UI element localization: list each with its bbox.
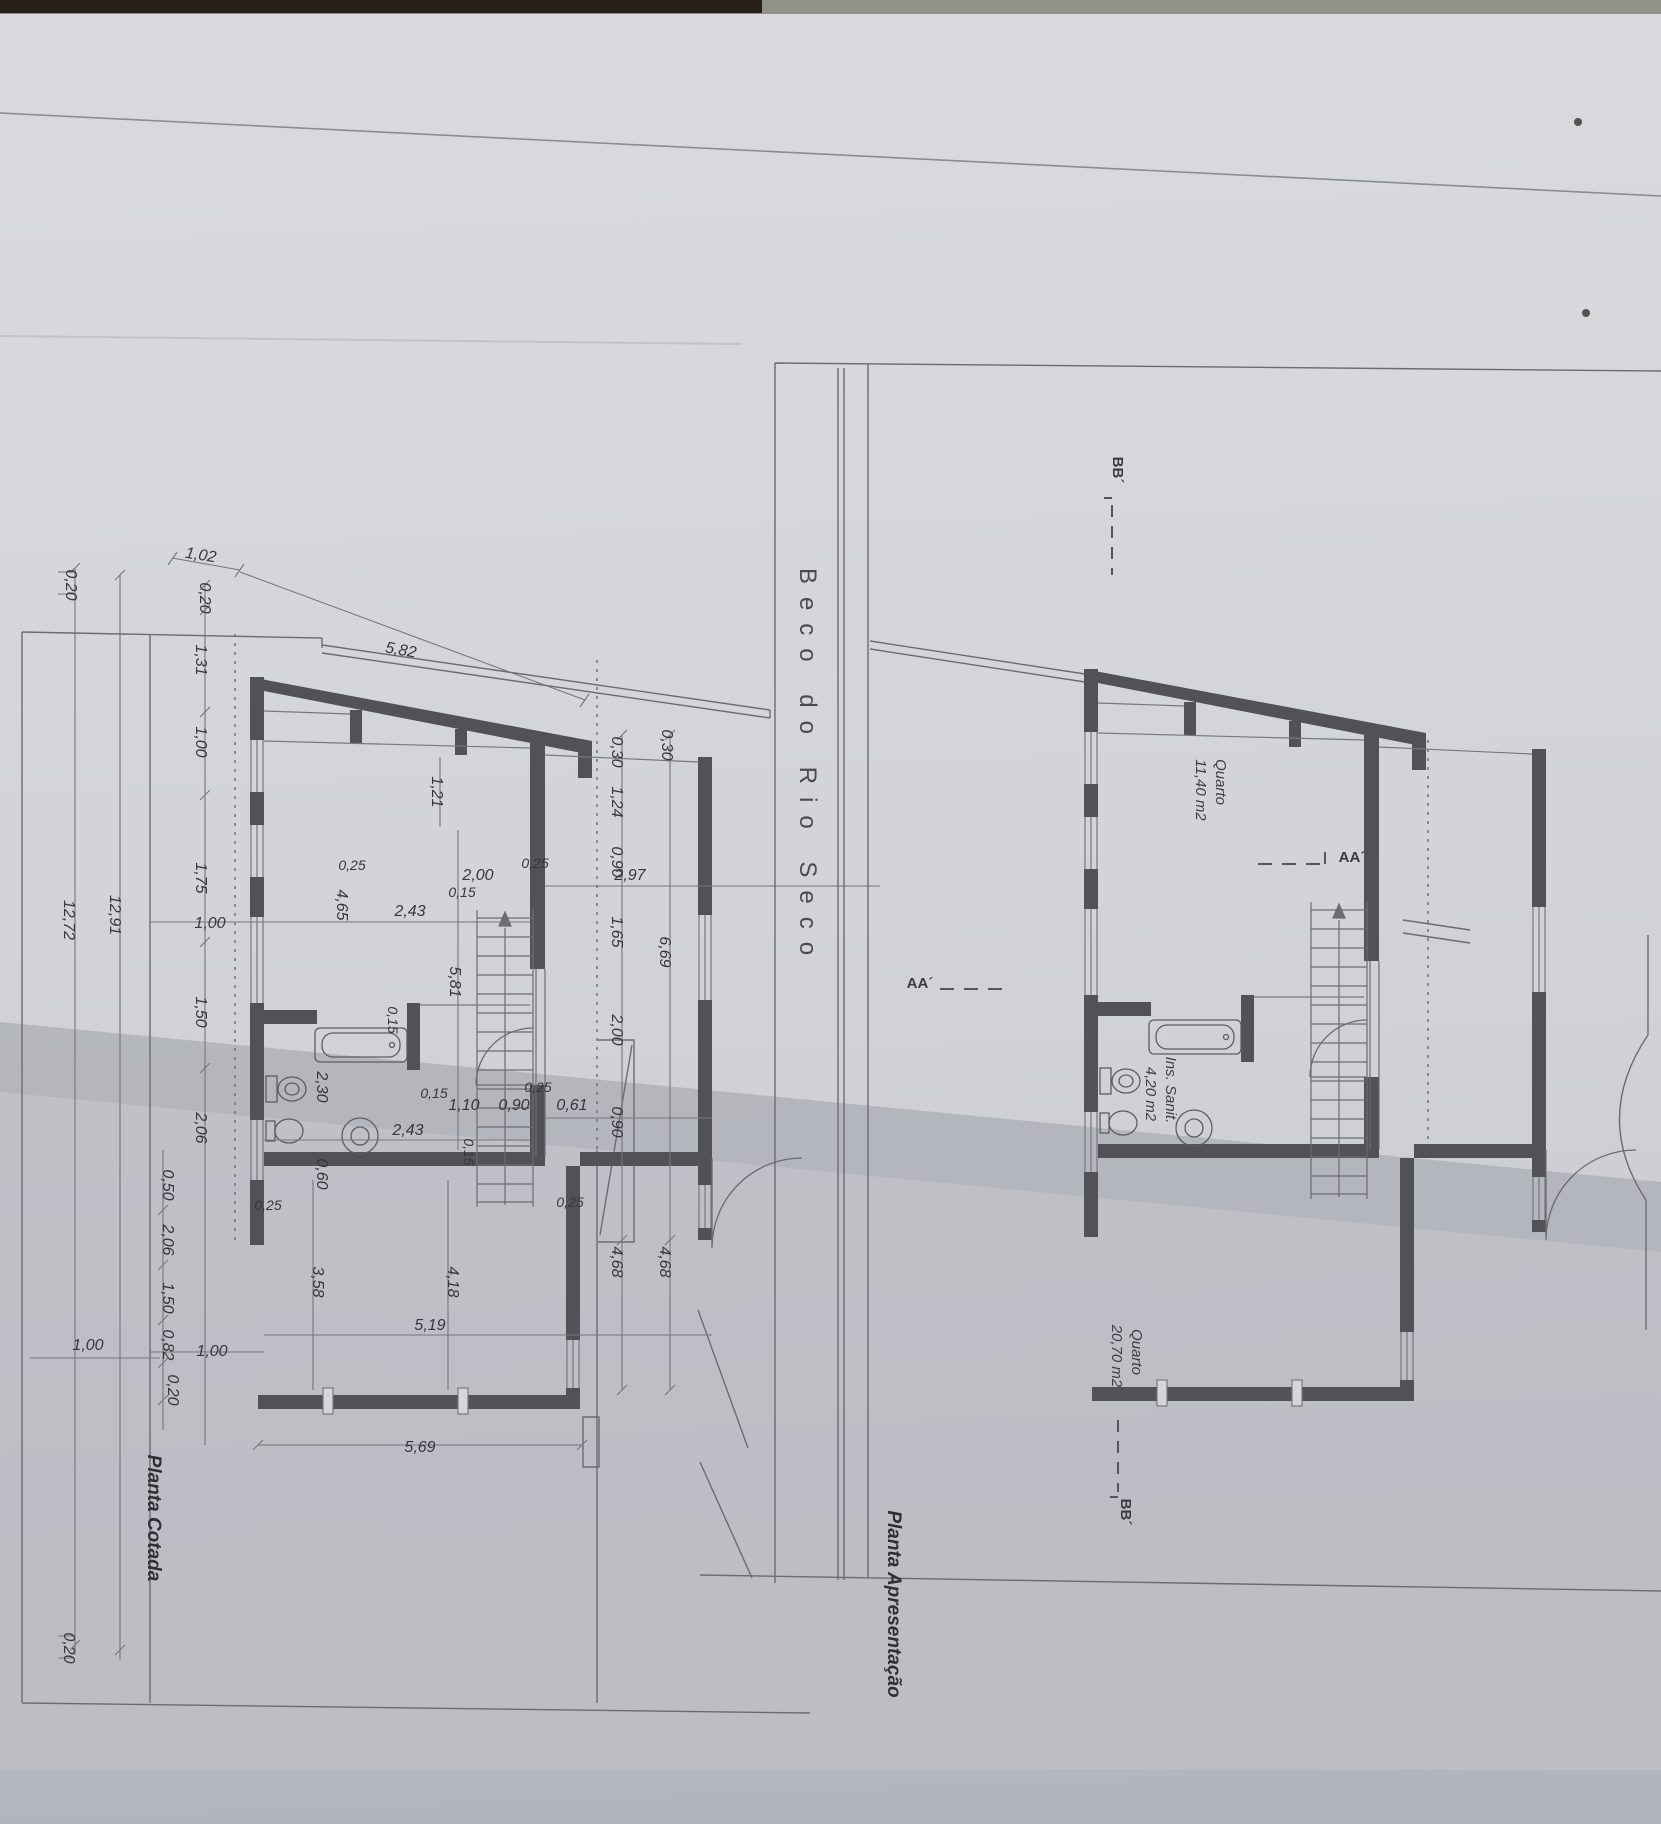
dimension-label: 1,65 (608, 916, 625, 947)
bathtub-drain (1224, 1035, 1229, 1040)
wall-stairwell (1364, 735, 1379, 961)
bottom-edge-shade (0, 1770, 1661, 1824)
wall-left-pier (250, 792, 264, 825)
room-name: Quarto (1212, 759, 1229, 805)
wall-stub (1184, 702, 1196, 735)
section-label-bb-bottom: BB´ (1117, 1499, 1134, 1526)
dimension-label: 2,43 (391, 1122, 423, 1139)
dimension-label: 0,30 (658, 729, 675, 760)
dimension-label: 0,90 (608, 1106, 625, 1137)
room-area: 4,20 m2 (1142, 1067, 1159, 1122)
dimension-label: 0,15 (420, 1085, 447, 1101)
dark-table-strip (0, 0, 762, 13)
dimension-label: 3,58 (309, 1266, 326, 1297)
dimension-label: 0,15 (448, 884, 475, 900)
dimension-label: 0,25 (521, 855, 548, 871)
dimension-label: 1,50 (192, 996, 209, 1027)
window-hardware (323, 1388, 333, 1414)
dimension-label: 2,00 (461, 867, 493, 884)
dimension-label: 0,20 (164, 1374, 181, 1405)
toilet-tank (1100, 1068, 1111, 1094)
wall-right-pier (698, 1228, 712, 1240)
dimension-label: 5,82 (384, 639, 418, 661)
dimension-label: 1,00 (196, 1343, 227, 1360)
wall-right-pier (1532, 749, 1546, 907)
dimension-label: 0,90 (498, 1097, 529, 1114)
wall-corner-l (1414, 1144, 1546, 1158)
wall-bottomroom-right (1400, 1158, 1414, 1332)
bathtub-drain (390, 1043, 395, 1048)
wall-stub (1412, 733, 1426, 770)
paper-crease-line (0, 336, 742, 344)
dimension-label: 0,50 (159, 1169, 176, 1200)
wall-bath-divider (1241, 995, 1254, 1062)
dimension-label: 4,18 (444, 1266, 461, 1297)
plan-title-left: Planta Cotada (143, 1455, 164, 1582)
floor-plan-photo: 1,02 5,82 0,20 1,31 1,00 1,75 1,50 2,06 … (0, 0, 1661, 1824)
wall-right-pier (1532, 1220, 1546, 1232)
interior-thin-walls (1098, 703, 1532, 997)
dimension-label: 0,60 (313, 1158, 330, 1189)
total-dimension-label: 12,91 (106, 895, 123, 935)
window-hardware (1292, 1380, 1302, 1406)
section-label-aa-right: AA´ (1339, 849, 1366, 866)
room-name: Ins. Sanit. (1162, 1057, 1179, 1124)
wall-stub (455, 729, 467, 755)
dimension-label: 1,10 (448, 1097, 479, 1114)
dimension-label: 5,19 (414, 1317, 445, 1334)
dimension-label: 2,30 (313, 1070, 330, 1102)
wall-bottomroom-bottom (258, 1395, 580, 1409)
dimension-label: 0,15 (385, 1006, 401, 1033)
wall-left-pier (1084, 669, 1098, 732)
wall-stub (578, 741, 592, 778)
wall-left-pier (250, 677, 264, 740)
dimension-label: 0,25 (254, 1197, 281, 1213)
section-label-bb-top: BB´ (1109, 457, 1126, 484)
dimension-label: 0,20 (62, 569, 79, 600)
dimension-label: 2,00 (608, 1013, 625, 1045)
dimension-label: 5,69 (404, 1439, 435, 1456)
room-area: 20,70 m2 (1108, 1324, 1125, 1388)
dimension-label: 1,00 (192, 726, 209, 757)
total-dimension-label: 12,72 (60, 900, 77, 940)
dimension-label: 0,30 (608, 736, 625, 767)
section-line-bb-top (1104, 498, 1112, 575)
wall-bath-bottom (264, 1152, 545, 1166)
wall-bottomroom-right (566, 1166, 580, 1340)
toilet-bowl (1112, 1069, 1140, 1093)
toilet-bowl-inner (1119, 1075, 1133, 1087)
dimension-label: 0,90 (608, 846, 625, 877)
wall-left-pier (250, 1003, 264, 1120)
dimension-label: 4,68 (656, 1246, 673, 1277)
sheet-border-line (0, 113, 1661, 196)
paper-speck (1582, 309, 1590, 317)
stair-up-arrow (1333, 904, 1345, 918)
dimension-label: 1,21 (428, 776, 445, 807)
wall-bath-top (1098, 1002, 1151, 1016)
wall-corner-l (580, 1152, 712, 1166)
dimension-label: 4,65 (333, 889, 350, 920)
window-hardware (458, 1388, 468, 1414)
wall-left-pier (1084, 1172, 1098, 1237)
dimension-label: 0,61 (556, 1097, 587, 1114)
dimension-label: 1,50 (159, 1282, 176, 1313)
wall-left-pier (1084, 995, 1098, 1112)
washbasin-inner (1185, 1119, 1203, 1137)
wall-stub (350, 710, 362, 743)
wall-bath-top (264, 1010, 317, 1024)
photo-background (0, 0, 1661, 1824)
dimension-label: 1,00 (72, 1337, 103, 1354)
dimension-label: 1,00 (194, 915, 225, 932)
floor-plan-drawing: 1,02 5,82 0,20 1,31 1,00 1,75 1,50 2,06 … (0, 0, 1661, 1824)
dimension-label: 0,25 (338, 857, 365, 873)
street-name-label: Beco do Rio Seco (794, 568, 821, 968)
wall-bath-divider (407, 1003, 420, 1070)
interior-thin-walls (264, 711, 698, 1005)
wall-left-pier (1084, 784, 1098, 817)
section-label-aa-left: AA´ (907, 975, 934, 992)
dimension-label: 0,15 (461, 1138, 477, 1165)
dimension-label: 4,68 (608, 1246, 625, 1277)
wall-stub (1289, 721, 1301, 747)
dimension-label: 0,20 (196, 582, 213, 613)
dimension-label: 1,31 (192, 644, 209, 675)
dimension-label: 1,02 (184, 545, 218, 567)
paper-speck (1574, 118, 1582, 126)
wall-left-pier (1084, 869, 1098, 909)
room-area: 11,40 m2 (1192, 759, 1209, 821)
dimension-label: 1,24 (608, 786, 625, 817)
plan-title-right: Planta Apresentação (883, 1510, 904, 1697)
wall-right-pier (698, 757, 712, 915)
bathtub-inner (322, 1033, 400, 1057)
window-hardware (1157, 1380, 1167, 1406)
room-name: Quarto (1128, 1329, 1145, 1375)
dimension-label: 0,25 (556, 1194, 583, 1210)
wall-bath-bottom (1098, 1144, 1379, 1158)
bathtub-inner (1156, 1025, 1234, 1049)
site-step-lines (1403, 920, 1470, 943)
dimension-label: 0,82 (159, 1329, 176, 1360)
wall-left-pier (250, 877, 264, 917)
dimension-label: 0,20 (60, 1632, 77, 1663)
dimension-label: 2,06 (192, 1111, 209, 1143)
stair-up-arrow (499, 912, 511, 926)
wall-bottomroom-bottom (1092, 1387, 1414, 1401)
dimension-label: 1,75 (192, 862, 209, 893)
dimension-label: 5,81 (446, 966, 463, 997)
street-band (870, 641, 1085, 682)
section-line-aa-right (1258, 852, 1325, 864)
dimension-label: 0,25 (524, 1079, 551, 1095)
dimension-label: 6,69 (656, 936, 673, 967)
dimension-label: 2,06 (159, 1223, 176, 1255)
dimension-label: 2,43 (393, 903, 425, 920)
